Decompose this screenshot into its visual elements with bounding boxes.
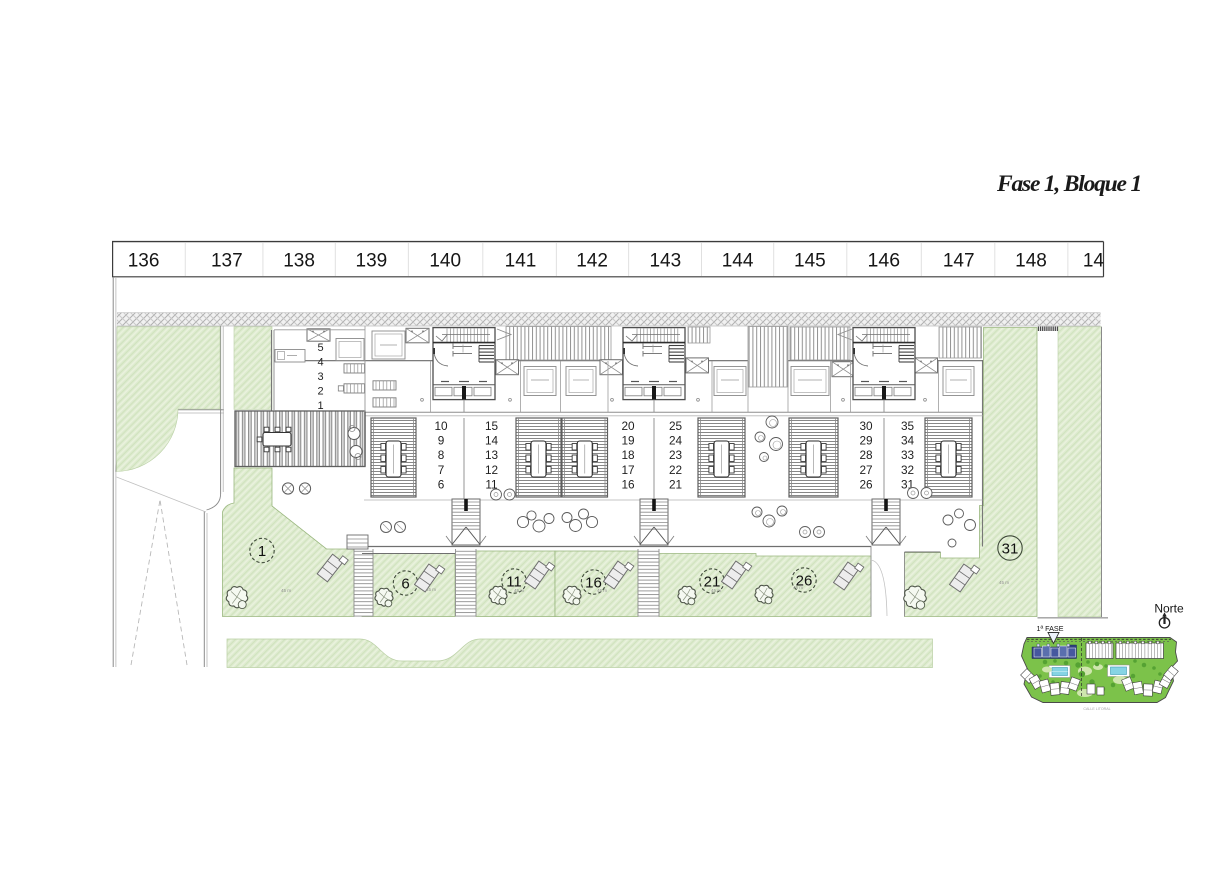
svg-text:45 m: 45 m <box>426 587 436 592</box>
svg-text:27: 27 <box>859 463 872 477</box>
svg-text:14: 14 <box>1083 251 1105 272</box>
svg-text:7: 7 <box>438 463 445 477</box>
svg-text:16: 16 <box>621 477 635 491</box>
svg-text:19: 19 <box>621 434 634 448</box>
svg-text:CALLE LITORAL: CALLE LITORAL <box>1083 707 1110 711</box>
svg-text:136: 136 <box>128 251 160 272</box>
svg-text:29: 29 <box>859 434 872 448</box>
svg-text:21: 21 <box>669 477 682 491</box>
svg-text:4: 4 <box>317 357 323 369</box>
svg-text:12: 12 <box>485 463 498 477</box>
svg-text:1: 1 <box>317 400 323 412</box>
svg-text:45 m: 45 m <box>793 585 803 590</box>
svg-text:17: 17 <box>621 463 634 477</box>
svg-text:6: 6 <box>438 477 445 491</box>
svg-text:30: 30 <box>859 419 873 433</box>
svg-text:148: 148 <box>1015 251 1047 272</box>
svg-text:139: 139 <box>356 251 388 272</box>
svg-text:45 m: 45 m <box>597 588 607 593</box>
svg-text:22: 22 <box>669 463 682 477</box>
svg-text:35: 35 <box>901 419 915 433</box>
svg-text:45 m: 45 m <box>711 588 721 593</box>
svg-text:23: 23 <box>669 448 683 462</box>
svg-text:1ª FASE: 1ª FASE <box>1036 624 1063 633</box>
svg-text:34: 34 <box>901 434 915 448</box>
svg-text:9: 9 <box>438 434 445 448</box>
svg-text:3: 3 <box>317 371 323 383</box>
svg-text:145: 145 <box>794 251 826 272</box>
svg-text:33: 33 <box>901 448 915 462</box>
svg-text:24: 24 <box>669 434 683 448</box>
svg-text:2: 2 <box>317 386 323 398</box>
svg-text:32: 32 <box>901 463 914 477</box>
svg-text:138: 138 <box>283 251 315 272</box>
svg-text:25: 25 <box>669 419 683 433</box>
svg-text:144: 144 <box>722 251 754 272</box>
svg-text:45 m: 45 m <box>999 580 1009 585</box>
svg-text:6: 6 <box>401 576 409 593</box>
svg-text:45 m: 45 m <box>281 588 291 593</box>
svg-text:20: 20 <box>621 419 635 433</box>
svg-text:137: 137 <box>211 251 243 272</box>
svg-text:143: 143 <box>649 251 681 272</box>
svg-text:8: 8 <box>438 448 445 462</box>
svg-text:15: 15 <box>485 419 499 433</box>
svg-text:147: 147 <box>943 251 975 272</box>
svg-text:45 m: 45 m <box>514 588 524 593</box>
svg-text:5: 5 <box>317 342 323 354</box>
svg-text:31: 31 <box>1002 541 1019 558</box>
svg-text:146: 146 <box>868 250 901 272</box>
svg-text:13: 13 <box>485 448 499 462</box>
svg-text:18: 18 <box>621 448 635 462</box>
svg-text:142: 142 <box>576 251 608 272</box>
svg-text:140: 140 <box>429 251 461 272</box>
svg-text:Fase 1, Bloque 1: Fase 1, Bloque 1 <box>996 171 1141 197</box>
svg-text:14: 14 <box>485 434 499 448</box>
svg-text:1: 1 <box>258 543 266 560</box>
svg-text:26: 26 <box>859 477 873 491</box>
svg-text:10: 10 <box>434 419 448 433</box>
svg-text:Norte: Norte <box>1154 602 1184 616</box>
svg-text:28: 28 <box>859 448 873 462</box>
svg-text:141: 141 <box>505 251 537 272</box>
